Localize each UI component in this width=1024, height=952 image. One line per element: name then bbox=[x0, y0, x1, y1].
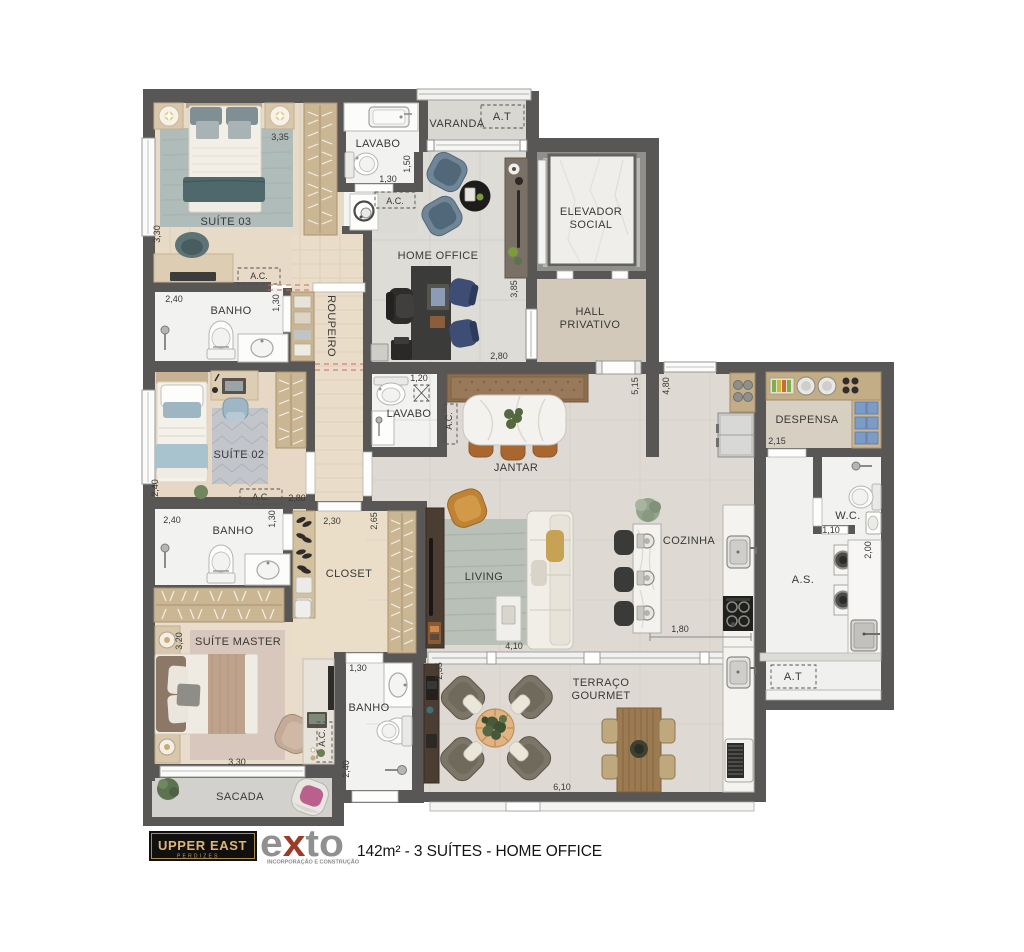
svg-text:SUÍTE 02: SUÍTE 02 bbox=[214, 448, 265, 461]
svg-text:HOME OFFICE: HOME OFFICE bbox=[398, 250, 479, 262]
svg-text:4,80: 4,80 bbox=[661, 377, 671, 395]
svg-text:1,30: 1,30 bbox=[379, 174, 397, 184]
svg-text:2,80: 2,80 bbox=[288, 493, 306, 503]
svg-text:3,30: 3,30 bbox=[228, 757, 246, 767]
svg-text:A.C.: A.C. bbox=[252, 492, 270, 502]
svg-text:BANHO: BANHO bbox=[348, 702, 389, 714]
svg-text:LAVABO: LAVABO bbox=[387, 408, 432, 420]
svg-text:2,40: 2,40 bbox=[150, 479, 160, 497]
svg-text:SACADA: SACADA bbox=[216, 791, 264, 803]
svg-text:A.C.: A.C. bbox=[250, 271, 268, 281]
svg-text:A.C.: A.C. bbox=[386, 196, 404, 206]
svg-text:1,30: 1,30 bbox=[267, 510, 277, 528]
svg-text:3,20: 3,20 bbox=[174, 632, 184, 650]
svg-text:ELEVADOR: ELEVADOR bbox=[560, 206, 622, 218]
svg-text:2,00: 2,00 bbox=[863, 541, 873, 559]
svg-text:2,80: 2,80 bbox=[490, 351, 508, 361]
svg-text:2,30: 2,30 bbox=[323, 516, 341, 526]
svg-text:6,10: 6,10 bbox=[553, 782, 571, 792]
svg-text:BANHO: BANHO bbox=[212, 525, 253, 537]
svg-text:1,10: 1,10 bbox=[822, 525, 840, 535]
svg-text:A.T: A.T bbox=[493, 111, 511, 123]
svg-text:A.T: A.T bbox=[784, 671, 802, 683]
svg-text:UPPER EAST: UPPER EAST bbox=[158, 838, 247, 853]
svg-text:1,30: 1,30 bbox=[271, 294, 281, 312]
svg-text:142m² - 3 SUÍTES - HOME OFFICE: 142m² - 3 SUÍTES - HOME OFFICE bbox=[357, 843, 602, 860]
svg-text:LAVABO: LAVABO bbox=[356, 138, 401, 150]
svg-text:1,20: 1,20 bbox=[410, 373, 428, 383]
svg-text:SUÍTE 03: SUÍTE 03 bbox=[201, 215, 252, 228]
svg-text:1,30: 1,30 bbox=[349, 663, 367, 673]
svg-text:3,30: 3,30 bbox=[152, 225, 162, 243]
svg-text:2,40: 2,40 bbox=[163, 515, 181, 525]
svg-text:TERRAÇO: TERRAÇO bbox=[573, 677, 630, 689]
svg-text:COZINHA: COZINHA bbox=[663, 535, 716, 547]
svg-text:W.C.: W.C. bbox=[835, 510, 860, 522]
svg-text:2,40: 2,40 bbox=[165, 294, 183, 304]
svg-text:HALL: HALL bbox=[575, 306, 604, 318]
svg-text:LIVING: LIVING bbox=[465, 571, 503, 583]
svg-text:SUÍTE MASTER: SUÍTE MASTER bbox=[195, 635, 281, 648]
svg-text:2,35: 2,35 bbox=[434, 662, 444, 680]
svg-text:VARANDA: VARANDA bbox=[429, 118, 484, 130]
svg-text:3,35: 3,35 bbox=[271, 132, 289, 142]
svg-text:CLOSET: CLOSET bbox=[326, 568, 372, 580]
svg-text:GOURMET: GOURMET bbox=[571, 690, 630, 702]
svg-text:JANTAR: JANTAR bbox=[494, 462, 538, 474]
svg-text:A.S.: A.S. bbox=[792, 574, 814, 586]
svg-text:INCORPORAÇÃO E CONSTRUÇÃO: INCORPORAÇÃO E CONSTRUÇÃO bbox=[267, 859, 360, 866]
svg-text:BANHO: BANHO bbox=[210, 305, 251, 317]
svg-text:2,40: 2,40 bbox=[341, 760, 351, 778]
svg-text:ROUPEIRO: ROUPEIRO bbox=[325, 295, 337, 357]
svg-text:PERDIZES: PERDIZES bbox=[177, 854, 220, 860]
svg-text:DESPENSA: DESPENSA bbox=[775, 414, 838, 426]
svg-text:2,15: 2,15 bbox=[768, 436, 786, 446]
svg-text:A.C.: A.C. bbox=[317, 729, 327, 747]
svg-text:PRIVATIVO: PRIVATIVO bbox=[560, 319, 621, 331]
svg-text:1,80: 1,80 bbox=[671, 624, 689, 634]
svg-text:3,85: 3,85 bbox=[509, 280, 519, 298]
svg-text:SOCIAL: SOCIAL bbox=[570, 219, 613, 231]
svg-text:2,65: 2,65 bbox=[369, 512, 379, 530]
svg-text:5,15: 5,15 bbox=[630, 377, 640, 395]
svg-text:1,50: 1,50 bbox=[402, 155, 412, 173]
svg-text:A.C.: A.C. bbox=[444, 412, 454, 430]
svg-text:4,10: 4,10 bbox=[505, 641, 523, 651]
